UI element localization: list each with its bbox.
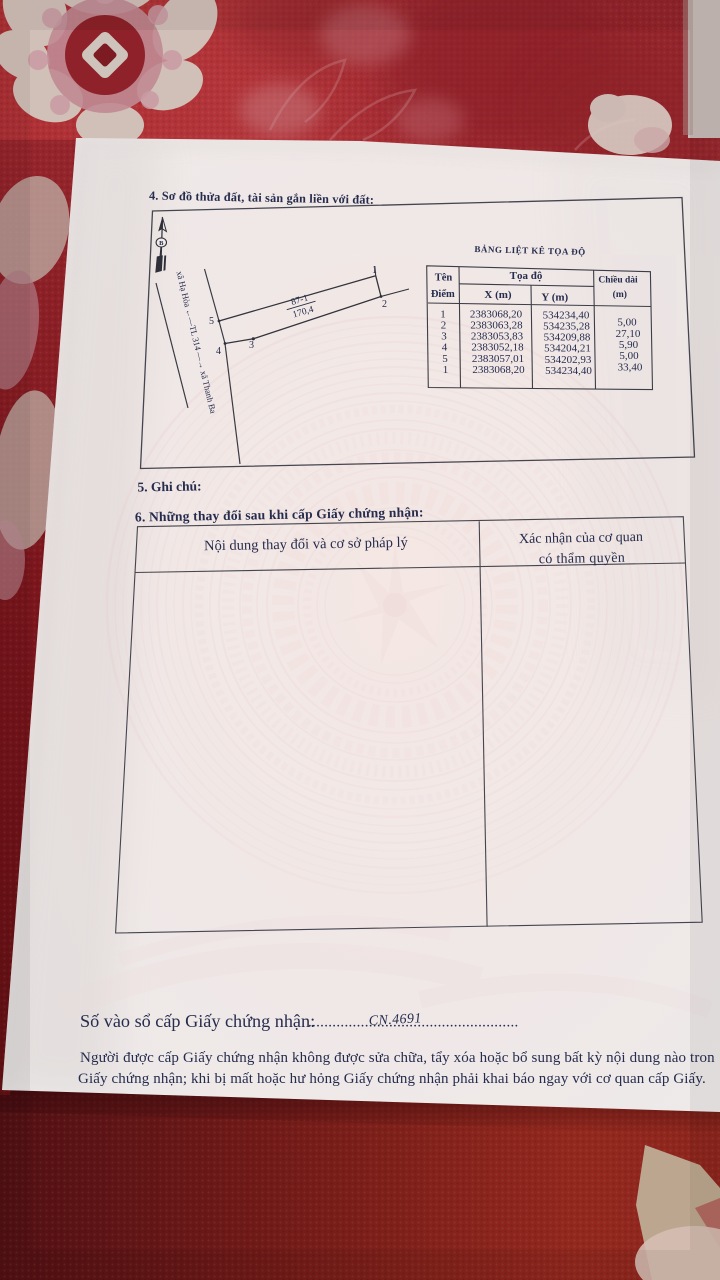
svg-text:5,00: 5,00 (619, 350, 639, 362)
svg-text:5: 5 (442, 353, 448, 365)
svg-text:3: 3 (249, 340, 254, 351)
svg-text:(m): (m) (613, 289, 627, 300)
svg-text:Y (m): Y (m) (541, 292, 568, 304)
svg-text:534234,40: 534234,40 (545, 365, 592, 377)
svg-text:có thẩm quyền: có thẩm quyền (539, 551, 626, 568)
svg-text:Tên: Tên (435, 273, 453, 284)
svg-text:2383068,20: 2383068,20 (472, 364, 525, 376)
svg-text:534202,93: 534202,93 (545, 354, 592, 366)
svg-text:2383057,01: 2383057,01 (472, 353, 524, 365)
svg-text:Chiều dài: Chiều dài (598, 275, 638, 286)
svg-text:Người được cấp Giấy chứng nhận: Người được cấp Giấy chứng nhận không đượ… (80, 1050, 715, 1066)
svg-text:1: 1 (372, 265, 377, 276)
svg-text:2: 2 (382, 299, 387, 310)
svg-text:Giấy chứng nhận; khi bị mất ho: Giấy chứng nhận; khi bị mất hoặc hư hỏng… (78, 1071, 706, 1087)
svg-text:Số vào sổ cấp Giấy chứng nhận:: Số vào sổ cấp Giấy chứng nhận: (80, 1011, 315, 1031)
svg-text:5: 5 (209, 316, 214, 327)
svg-text:1: 1 (443, 364, 449, 376)
svg-text:Tọa độ: Tọa độ (510, 270, 543, 282)
svg-text:X (m): X (m) (484, 289, 512, 301)
svg-text:5. Ghi chú:: 5. Ghi chú: (137, 478, 201, 494)
svg-text:4: 4 (216, 346, 221, 357)
svg-text:B: B (159, 240, 164, 247)
svg-text:CN.4691: CN.4691 (368, 1011, 422, 1029)
svg-text:Điểm: Điểm (431, 289, 455, 300)
svg-text:33,40: 33,40 (618, 361, 643, 373)
svg-text:Xác nhận của cơ quan: Xác nhận của cơ quan (519, 530, 643, 547)
